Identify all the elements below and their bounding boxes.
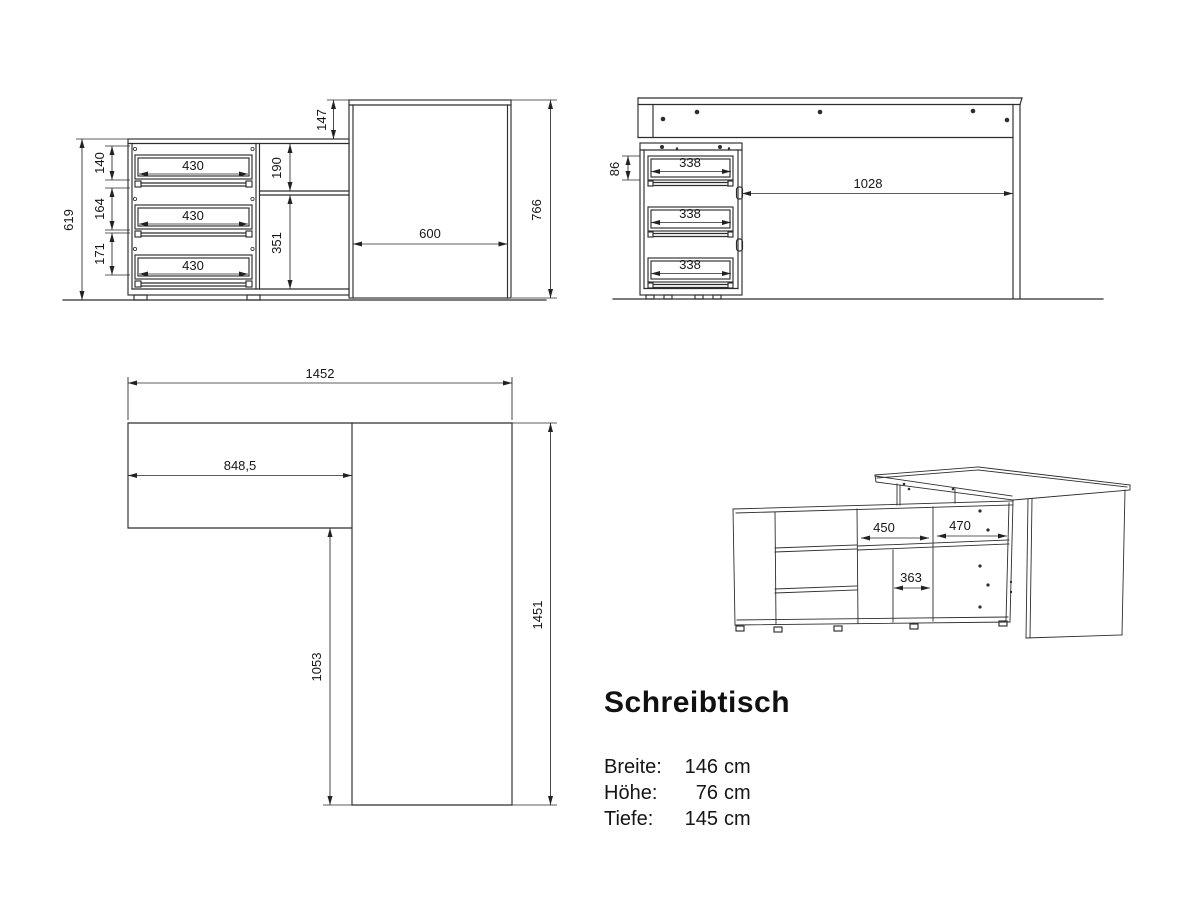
spec-label-breite: Breite: <box>604 754 684 780</box>
dim-label-338-1: 338 <box>679 155 701 170</box>
dim-label-140: 140 <box>92 152 107 174</box>
dim-label-363: 363 <box>900 570 922 585</box>
spec-value-breite: 146 <box>684 754 718 780</box>
spec-value-tiefe: 145 <box>684 806 718 832</box>
view-side-elevation: 430 430 430 140 164 171 619 190 <box>61 100 557 300</box>
side-elevation-outline <box>63 100 546 300</box>
spec-unit-tiefe: cm <box>724 806 751 832</box>
spec-unit-hoehe: cm <box>724 780 751 806</box>
dim-label-619: 619 <box>61 209 76 231</box>
title-block: Schreibtisch Breite: 146 cm Höhe: 76 cm … <box>604 686 790 832</box>
spec-row-breite: Breite: 146 cm <box>604 754 790 780</box>
view-plan: 1452 848,5 1053 1451 <box>128 366 557 805</box>
dim-label-190: 190 <box>269 157 284 179</box>
view-front-elevation: 338 338 338 86 1028 <box>607 98 1103 299</box>
dim-label-86: 86 <box>607 162 622 176</box>
drawing-svg: 430 430 430 140 164 171 619 190 <box>0 0 1200 899</box>
dim-label-450: 450 <box>873 520 895 535</box>
dim-label-351: 351 <box>269 232 284 254</box>
perspective-dimensions: 450 470 363 <box>861 518 1007 588</box>
technical-drawing-sheet: 430 430 430 140 164 171 619 190 <box>0 0 1200 899</box>
dim-label-430-2: 430 <box>182 208 204 223</box>
dim-label-430-1: 430 <box>182 158 204 173</box>
spec-row-hoehe: Höhe: 76 cm <box>604 780 790 806</box>
dim-label-1452: 1452 <box>306 366 335 381</box>
spec-label-tiefe: Tiefe: <box>604 806 684 832</box>
spec-label-hoehe: Höhe: <box>604 780 684 806</box>
product-title: Schreibtisch <box>604 686 790 720</box>
dim-label-1451: 1451 <box>530 601 545 630</box>
spec-row-tiefe: Tiefe: 145 cm <box>604 806 790 832</box>
dim-label-147: 147 <box>314 109 329 131</box>
perspective-outline <box>733 467 1130 638</box>
dim-label-848-5: 848,5 <box>224 458 257 473</box>
view-perspective: 450 470 363 <box>733 467 1130 638</box>
dim-label-766: 766 <box>529 199 544 221</box>
spec-unit-breite: cm <box>724 754 751 780</box>
dim-label-430-3: 430 <box>182 258 204 273</box>
dim-label-171: 171 <box>92 243 107 265</box>
plan-dimensions: 1452 848,5 1053 1451 <box>128 366 557 805</box>
plan-outline <box>128 423 512 805</box>
dim-label-470: 470 <box>949 518 971 533</box>
dim-label-1053: 1053 <box>309 653 324 682</box>
dim-label-338-3: 338 <box>679 257 701 272</box>
dim-label-600: 600 <box>419 226 441 241</box>
dim-label-338-2: 338 <box>679 206 701 221</box>
spec-value-hoehe: 76 <box>684 780 718 806</box>
dim-label-1028: 1028 <box>854 176 883 191</box>
dim-label-164: 164 <box>92 198 107 220</box>
